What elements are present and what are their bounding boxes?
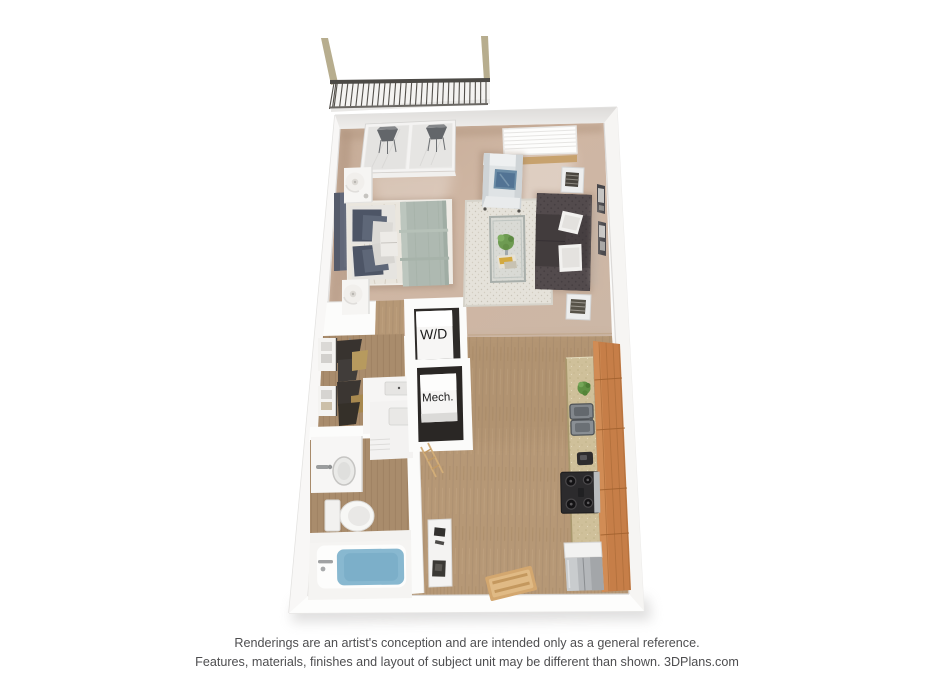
- svg-text:Mech.: Mech.: [422, 391, 454, 404]
- svg-text:Features, materials, finishes: Features, materials, finishes and layout…: [195, 655, 739, 669]
- svg-text:W/D: W/D: [420, 325, 448, 342]
- svg-text:Renderings are an artist's con: Renderings are an artist's conception an…: [234, 636, 699, 650]
